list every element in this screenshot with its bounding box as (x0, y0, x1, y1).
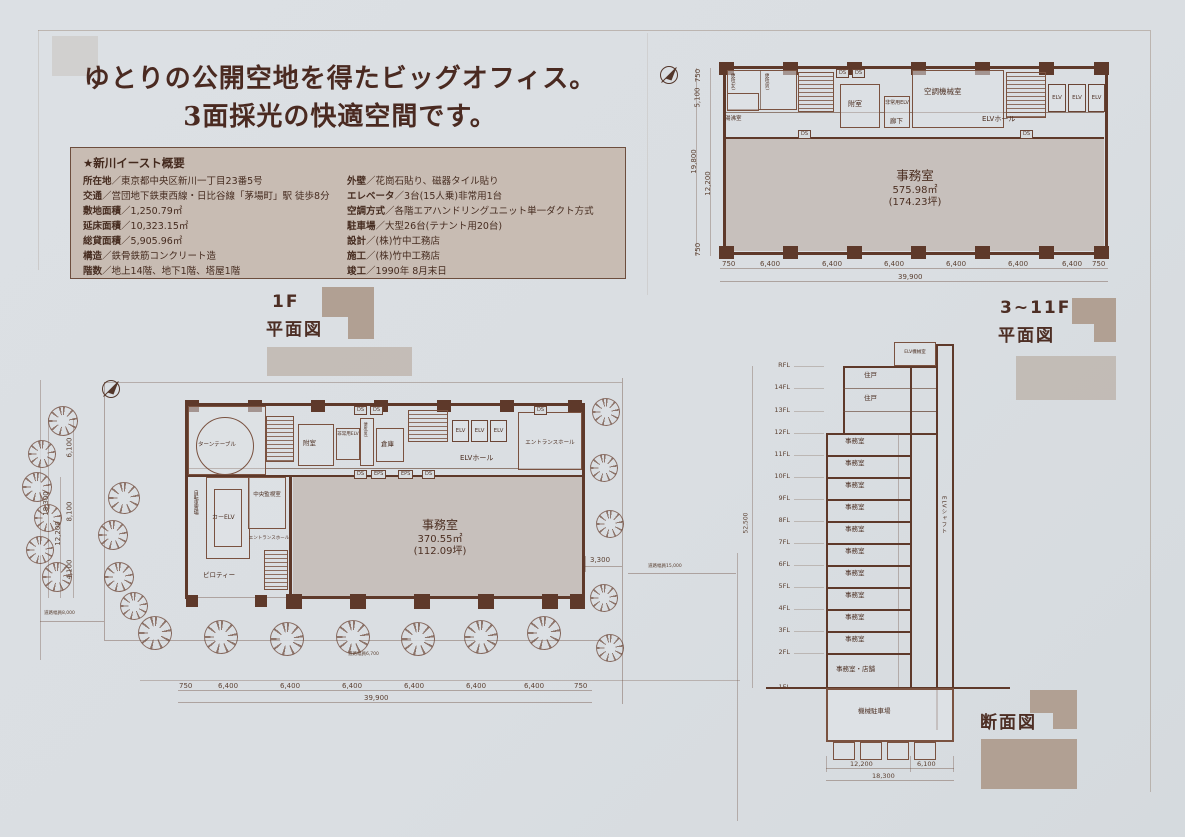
dim-label: 3,300 (590, 557, 610, 564)
floor-slab (912, 411, 936, 412)
room-label: エントランスホール (522, 440, 578, 447)
road-width-label: 道路幅員15,000 (648, 565, 682, 570)
room-label: ELVホール (982, 115, 1015, 123)
dim-label: 750 (574, 683, 587, 690)
dim-label: 750 (722, 261, 735, 268)
leader-line (794, 388, 824, 389)
room-label: エントランスホール (248, 536, 290, 541)
brochure-page: ゆとりの公開空地を得たビッグオフィス。 3面採光の快適空間です。 ★新川イースト… (0, 0, 1185, 837)
shaft-label: DS (354, 406, 367, 415)
spec-row: 構造／鉄骨鉄筋コンクリート造 (83, 249, 345, 264)
shaft-label: DS (354, 470, 367, 479)
floor-slab (826, 653, 912, 655)
deco-block (1030, 690, 1077, 713)
room-label: 倉庫 (381, 441, 394, 448)
dim-label: 6,400 (822, 261, 842, 268)
site-boundary-line (622, 378, 623, 704)
dim-label: 6,400 (524, 683, 544, 690)
room-label: 空調機械室 (924, 88, 962, 97)
floor-slab (912, 433, 936, 434)
column (911, 246, 926, 259)
tree-icon (120, 592, 148, 620)
overview-left-column: 所在地／東京都中央区新川一丁目23番5号 交通／営団地下鉄東西線・日比谷線「茅場… (83, 174, 345, 279)
dim-label: 750 (179, 683, 192, 690)
wall (843, 366, 936, 368)
office-tsubo-value: (174.23坪) (820, 197, 1010, 209)
wall (826, 433, 828, 688)
column (542, 594, 558, 609)
room-label: 事務室 (845, 636, 865, 643)
tree-icon (590, 454, 618, 482)
tree-icon (104, 562, 134, 592)
dim-line (826, 780, 954, 781)
room-label: 機械駐車場 (858, 708, 891, 715)
floor-label: 8FL (756, 517, 790, 524)
spec-row: 総貸面積／5,905.96㎡ (83, 234, 345, 249)
parking-pallet (833, 742, 855, 760)
room-label: 事務室 (845, 592, 865, 599)
floor-label: 5FL (756, 583, 790, 590)
floor-label: 11FL (756, 451, 790, 458)
dim-label: 6,400 (404, 683, 424, 690)
wall (726, 137, 1104, 139)
column (1094, 62, 1109, 75)
floor-label: RFL (756, 362, 790, 369)
floor-slab (843, 388, 936, 389)
tree-icon (108, 482, 140, 514)
dim-label: 8,100 (67, 501, 74, 521)
deco-block (1053, 713, 1077, 729)
site-boundary-line (104, 382, 105, 640)
room-label: 事務室 (845, 614, 865, 621)
room-label: 便所(男) (363, 422, 368, 437)
dim-line (710, 68, 711, 256)
shaft-label: ELVシャフト (940, 496, 946, 535)
deco-block (981, 739, 1077, 789)
wall (1105, 66, 1108, 255)
floor-label: 10FL (756, 473, 790, 480)
dim-line (585, 566, 622, 567)
caption-3-11f: 3~11F (1000, 298, 1071, 318)
column (500, 400, 514, 412)
elevator: ELV (1048, 84, 1066, 112)
room-kitchenette (727, 93, 759, 111)
floor-slab (826, 477, 912, 479)
leader-line (794, 565, 824, 566)
wall (288, 596, 585, 599)
dim-label: 4,100 (67, 559, 74, 579)
tree-icon (592, 398, 620, 426)
floor-label: 6FL (756, 561, 790, 568)
parking-pallet (914, 742, 936, 760)
column (783, 246, 798, 259)
room-label: ピロティー (203, 572, 235, 579)
deco-block (1094, 324, 1116, 342)
column (975, 246, 990, 259)
shaft-label: DS (852, 69, 865, 78)
leader-line (794, 587, 824, 588)
elevator: ELV (1068, 84, 1086, 112)
deco-block (267, 347, 412, 376)
dim-label: 12,200 (850, 761, 873, 768)
column (1094, 246, 1109, 259)
wall (898, 433, 899, 688)
piloti-edge-line (185, 597, 290, 598)
column (186, 595, 198, 607)
spec-row: 設計／(株)竹中工務店 (347, 234, 619, 249)
room-label: 事務室 (845, 570, 865, 577)
deco-block (1016, 356, 1116, 400)
room-label: カーELV (212, 515, 235, 522)
dim-label: 6,400 (280, 683, 300, 690)
room-label: 便所(女) (730, 73, 735, 90)
tree-icon (590, 584, 618, 612)
caption-section: 断面図 (980, 708, 1037, 733)
elevator: ELV (490, 420, 507, 442)
deco-block (348, 317, 374, 339)
floor-label: 3FL (756, 627, 790, 634)
dim-label: 6,400 (342, 683, 362, 690)
leader-line (794, 366, 824, 367)
caption-3-11f-plan: 平面図 (998, 321, 1055, 346)
headline-line2: 3面採光の快適空間です。 (40, 96, 640, 133)
column (478, 594, 494, 609)
floor-slab (826, 521, 912, 523)
dim-line (178, 690, 592, 691)
room-monitoring (248, 477, 286, 529)
dim-label: 6,400 (218, 683, 238, 690)
page-frame-left (38, 30, 39, 270)
dim-label: 6,400 (1008, 261, 1028, 268)
tree-icon (527, 616, 561, 650)
leader-line (794, 455, 824, 456)
room-label: ELVホール (460, 454, 493, 462)
spec-row: 階数／地上14階、地下1階、塔屋1階 (83, 264, 345, 279)
dim-label: 39,900 (364, 695, 389, 702)
dim-line (585, 556, 586, 572)
dim-label: 18,300 (43, 491, 50, 516)
road-edge-line (140, 680, 740, 681)
spec-row: エレベータ／3台(15人乗)非常用1台 (347, 189, 619, 204)
tree-icon (138, 616, 172, 650)
room-label: 湯沸室 (725, 116, 742, 122)
column (1039, 246, 1054, 259)
floor-label: 12FL (756, 429, 790, 436)
dim-label: 39,900 (898, 274, 923, 281)
elevator: ELV (1088, 84, 1105, 112)
room-label: 自転車置場 (192, 490, 198, 515)
dim-label: 6,400 (946, 261, 966, 268)
floor-slab (826, 631, 912, 633)
road-edge-line (737, 553, 738, 821)
dim-label: 6,400 (760, 261, 780, 268)
floor-slab (826, 587, 912, 589)
shaft-label: DS (370, 406, 383, 415)
shaft-label: EPS (398, 470, 413, 479)
wall (936, 344, 954, 346)
office-area-value: 575.98㎡ (820, 185, 1010, 197)
elevator: ELV (452, 420, 469, 442)
room-label: 廊下 (890, 118, 903, 125)
leader-line (794, 609, 824, 610)
tree-icon (401, 622, 435, 656)
parking-pallet (887, 742, 909, 760)
dim-label: 750 (695, 243, 702, 256)
room-label: 事務室 (350, 518, 530, 532)
column (414, 594, 430, 609)
spec-row: 延床面積／10,323.15㎡ (83, 219, 345, 234)
wall (952, 346, 954, 730)
floor-label: 9FL (756, 495, 790, 502)
stairs (264, 550, 288, 590)
tree-icon (464, 620, 498, 654)
shaft-label: EPS (371, 470, 386, 479)
room-label: 事務室 (845, 504, 865, 511)
floor-slab (826, 565, 912, 567)
spec-row: 交通／営団地下鉄東西線・日比谷線「茅場町」駅 徒歩8分 (83, 189, 345, 204)
room-label: 事務室 (845, 548, 865, 555)
dim-label: 6,100 (917, 761, 936, 768)
shaft-label: DS (798, 130, 811, 139)
shaft-label: DS (534, 406, 547, 415)
shaft-label: DS (422, 470, 435, 479)
floor-label: 13FL (756, 407, 790, 414)
dim-label: 6,400 (1062, 261, 1082, 268)
dim-label: 52,500 (744, 513, 750, 534)
office-room-label: 事務室 370.55㎡ (112.09坪) (350, 518, 530, 558)
stairs (408, 410, 448, 442)
road-width-label: 道路幅員8,000 (44, 612, 75, 617)
dim-line (752, 366, 753, 688)
dim-line (178, 702, 592, 703)
column (350, 594, 366, 609)
leader-line (794, 521, 824, 522)
floor-slab (826, 499, 912, 501)
shaft-label: DS (1020, 130, 1033, 139)
site-boundary-line (104, 382, 622, 383)
room-label: ターンテーブル (198, 442, 236, 448)
dim-line (720, 268, 1108, 269)
tree-icon (26, 536, 54, 564)
room-label: 事務室 (820, 168, 1010, 183)
leader-line (794, 543, 824, 544)
deco-block (1072, 298, 1116, 324)
floor-label: 14FL (756, 384, 790, 391)
dim-label: 12,200 (55, 521, 62, 546)
room-label: 非常用ELV (337, 432, 359, 437)
dim-line (910, 756, 911, 772)
dim-line (826, 756, 827, 772)
room-label: 附室 (303, 440, 316, 447)
room-label: 事務室 (845, 460, 865, 467)
dim-line (40, 621, 104, 622)
room-label: 事務室・店舗 (836, 666, 875, 673)
fold-line (647, 33, 648, 295)
floor-slab (826, 609, 912, 611)
dim-label: 12,200 (705, 171, 712, 196)
floor-slab (826, 455, 912, 457)
spec-row: 施工／(株)竹中工務店 (347, 249, 619, 264)
dim-line (826, 768, 954, 769)
office-room-label: 事務室 575.98㎡ (174.23坪) (820, 168, 1010, 209)
tree-icon (28, 440, 56, 468)
column (719, 246, 734, 259)
dim-label: 6,100 (67, 437, 74, 457)
floor-slab (826, 543, 912, 545)
room-label: 住戸 (864, 395, 877, 402)
leader-line (794, 433, 824, 434)
road-width-label: 道路幅員6,700 (348, 653, 379, 658)
dim-label: 750 (695, 69, 702, 82)
dim-line (953, 756, 954, 772)
caption-1f: 1F (272, 292, 299, 312)
leader-line (794, 477, 824, 478)
tree-icon (596, 510, 624, 538)
building-overview-box: ★新川イースト概要 所在地／東京都中央区新川一丁目23番5号 交通／営団地下鉄東… (70, 147, 626, 279)
room-label: 中央監視室 (252, 492, 282, 499)
wall (843, 366, 845, 433)
spec-row: 竣工／1990年 8月末日 (347, 264, 619, 279)
north-arrow-icon (658, 64, 680, 86)
dim-label: 6,400 (466, 683, 486, 690)
deco-block (322, 287, 374, 317)
leader-line (794, 653, 824, 654)
parking-pallet (860, 742, 882, 760)
stairs (1006, 72, 1046, 118)
wall (760, 70, 761, 110)
stairs (266, 416, 294, 462)
spec-row: 所在地／東京都中央区新川一丁目23番5号 (83, 174, 345, 189)
room-label: ELV機械室 (895, 350, 935, 355)
spec-row: 空調方式／各階エアハンドリングユニット単一ダクト方式 (347, 204, 619, 219)
wall (910, 366, 912, 688)
floor-label: 4FL (756, 605, 790, 612)
room-label: 事務室 (845, 482, 865, 489)
column (568, 400, 582, 412)
column (847, 246, 862, 259)
spec-row: 駐車場／大型26台(テナント用20台) (347, 219, 619, 234)
column (255, 595, 267, 607)
room-label: 事務室 (845, 526, 865, 533)
column (286, 594, 302, 609)
leader-line (794, 631, 824, 632)
dim-label: 6,400 (884, 261, 904, 268)
office-tsubo-value: (112.09坪) (350, 546, 530, 558)
page-frame-top (38, 30, 1150, 31)
spec-row: 敷地面積／1,250.79㎡ (83, 204, 345, 219)
headline-line1: ゆとりの公開空地を得たビッグオフィス。 (40, 58, 640, 95)
floor-label: 2FL (756, 649, 790, 656)
column (311, 400, 325, 412)
room-label: 事務室 (845, 438, 865, 445)
wall (936, 346, 938, 730)
room-label: 非常用ELV (885, 100, 909, 106)
stairs (798, 72, 834, 112)
room-label: 住戸 (864, 372, 877, 379)
caption-1f-plan: 平面図 (266, 315, 323, 340)
room-label: 附室 (848, 100, 862, 108)
tree-icon (270, 622, 304, 656)
tree-icon (596, 634, 624, 662)
column (570, 594, 585, 609)
tree-icon (336, 620, 370, 654)
overview-right-column: 外壁／花崗石貼り、磁器タイル貼り エレベータ／3台(15人乗)非常用1台 空調方… (347, 174, 619, 279)
wall (723, 66, 726, 255)
dim-line (720, 281, 1108, 282)
office-area-value: 370.55㎡ (350, 534, 530, 546)
shaft-label: DS (836, 69, 849, 78)
dim-label: 5,100 (695, 87, 702, 107)
leader-line (794, 411, 824, 412)
floor-label: 7FL (756, 539, 790, 546)
overview-title: ★新川イースト概要 (83, 155, 185, 171)
leader-line (794, 499, 824, 500)
dim-line (628, 573, 736, 574)
elevator: ELV (471, 420, 488, 442)
tree-icon (98, 520, 128, 550)
dim-label: 750 (1092, 261, 1105, 268)
spec-row: 外壁／花崗石貼り、磁器タイル貼り (347, 174, 619, 189)
dim-label: 18,300 (872, 773, 895, 780)
tree-icon (204, 620, 238, 654)
page-frame-right (1150, 30, 1151, 792)
room-label: 便所(男) (764, 73, 769, 90)
dim-label: 19,800 (691, 149, 698, 174)
